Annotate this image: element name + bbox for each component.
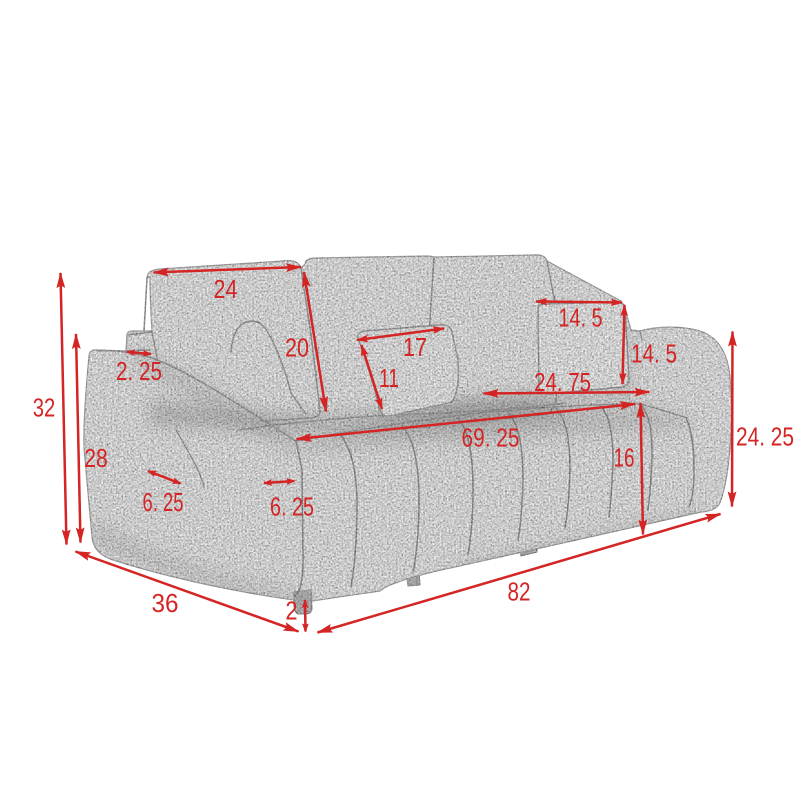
svg-text:16: 16	[614, 442, 635, 472]
svg-text:24. 25: 24. 25	[736, 422, 794, 452]
svg-text:14. 5: 14. 5	[559, 302, 603, 332]
svg-text:17: 17	[403, 332, 427, 362]
svg-text:14. 5: 14. 5	[631, 339, 677, 369]
svg-text:6. 25: 6. 25	[270, 492, 314, 522]
svg-text:24: 24	[214, 274, 238, 304]
svg-text:2: 2	[286, 596, 298, 626]
svg-text:36: 36	[152, 588, 179, 618]
svg-text:28: 28	[84, 443, 108, 473]
svg-text:2. 25: 2. 25	[116, 356, 162, 386]
svg-text:32: 32	[33, 392, 56, 422]
svg-text:69. 25: 69. 25	[462, 423, 520, 453]
svg-text:82: 82	[508, 577, 531, 607]
svg-text:24. 75: 24. 75	[534, 367, 591, 397]
svg-text:6. 25: 6. 25	[143, 487, 184, 517]
svg-text:11: 11	[379, 363, 399, 393]
svg-text:20: 20	[285, 333, 309, 363]
